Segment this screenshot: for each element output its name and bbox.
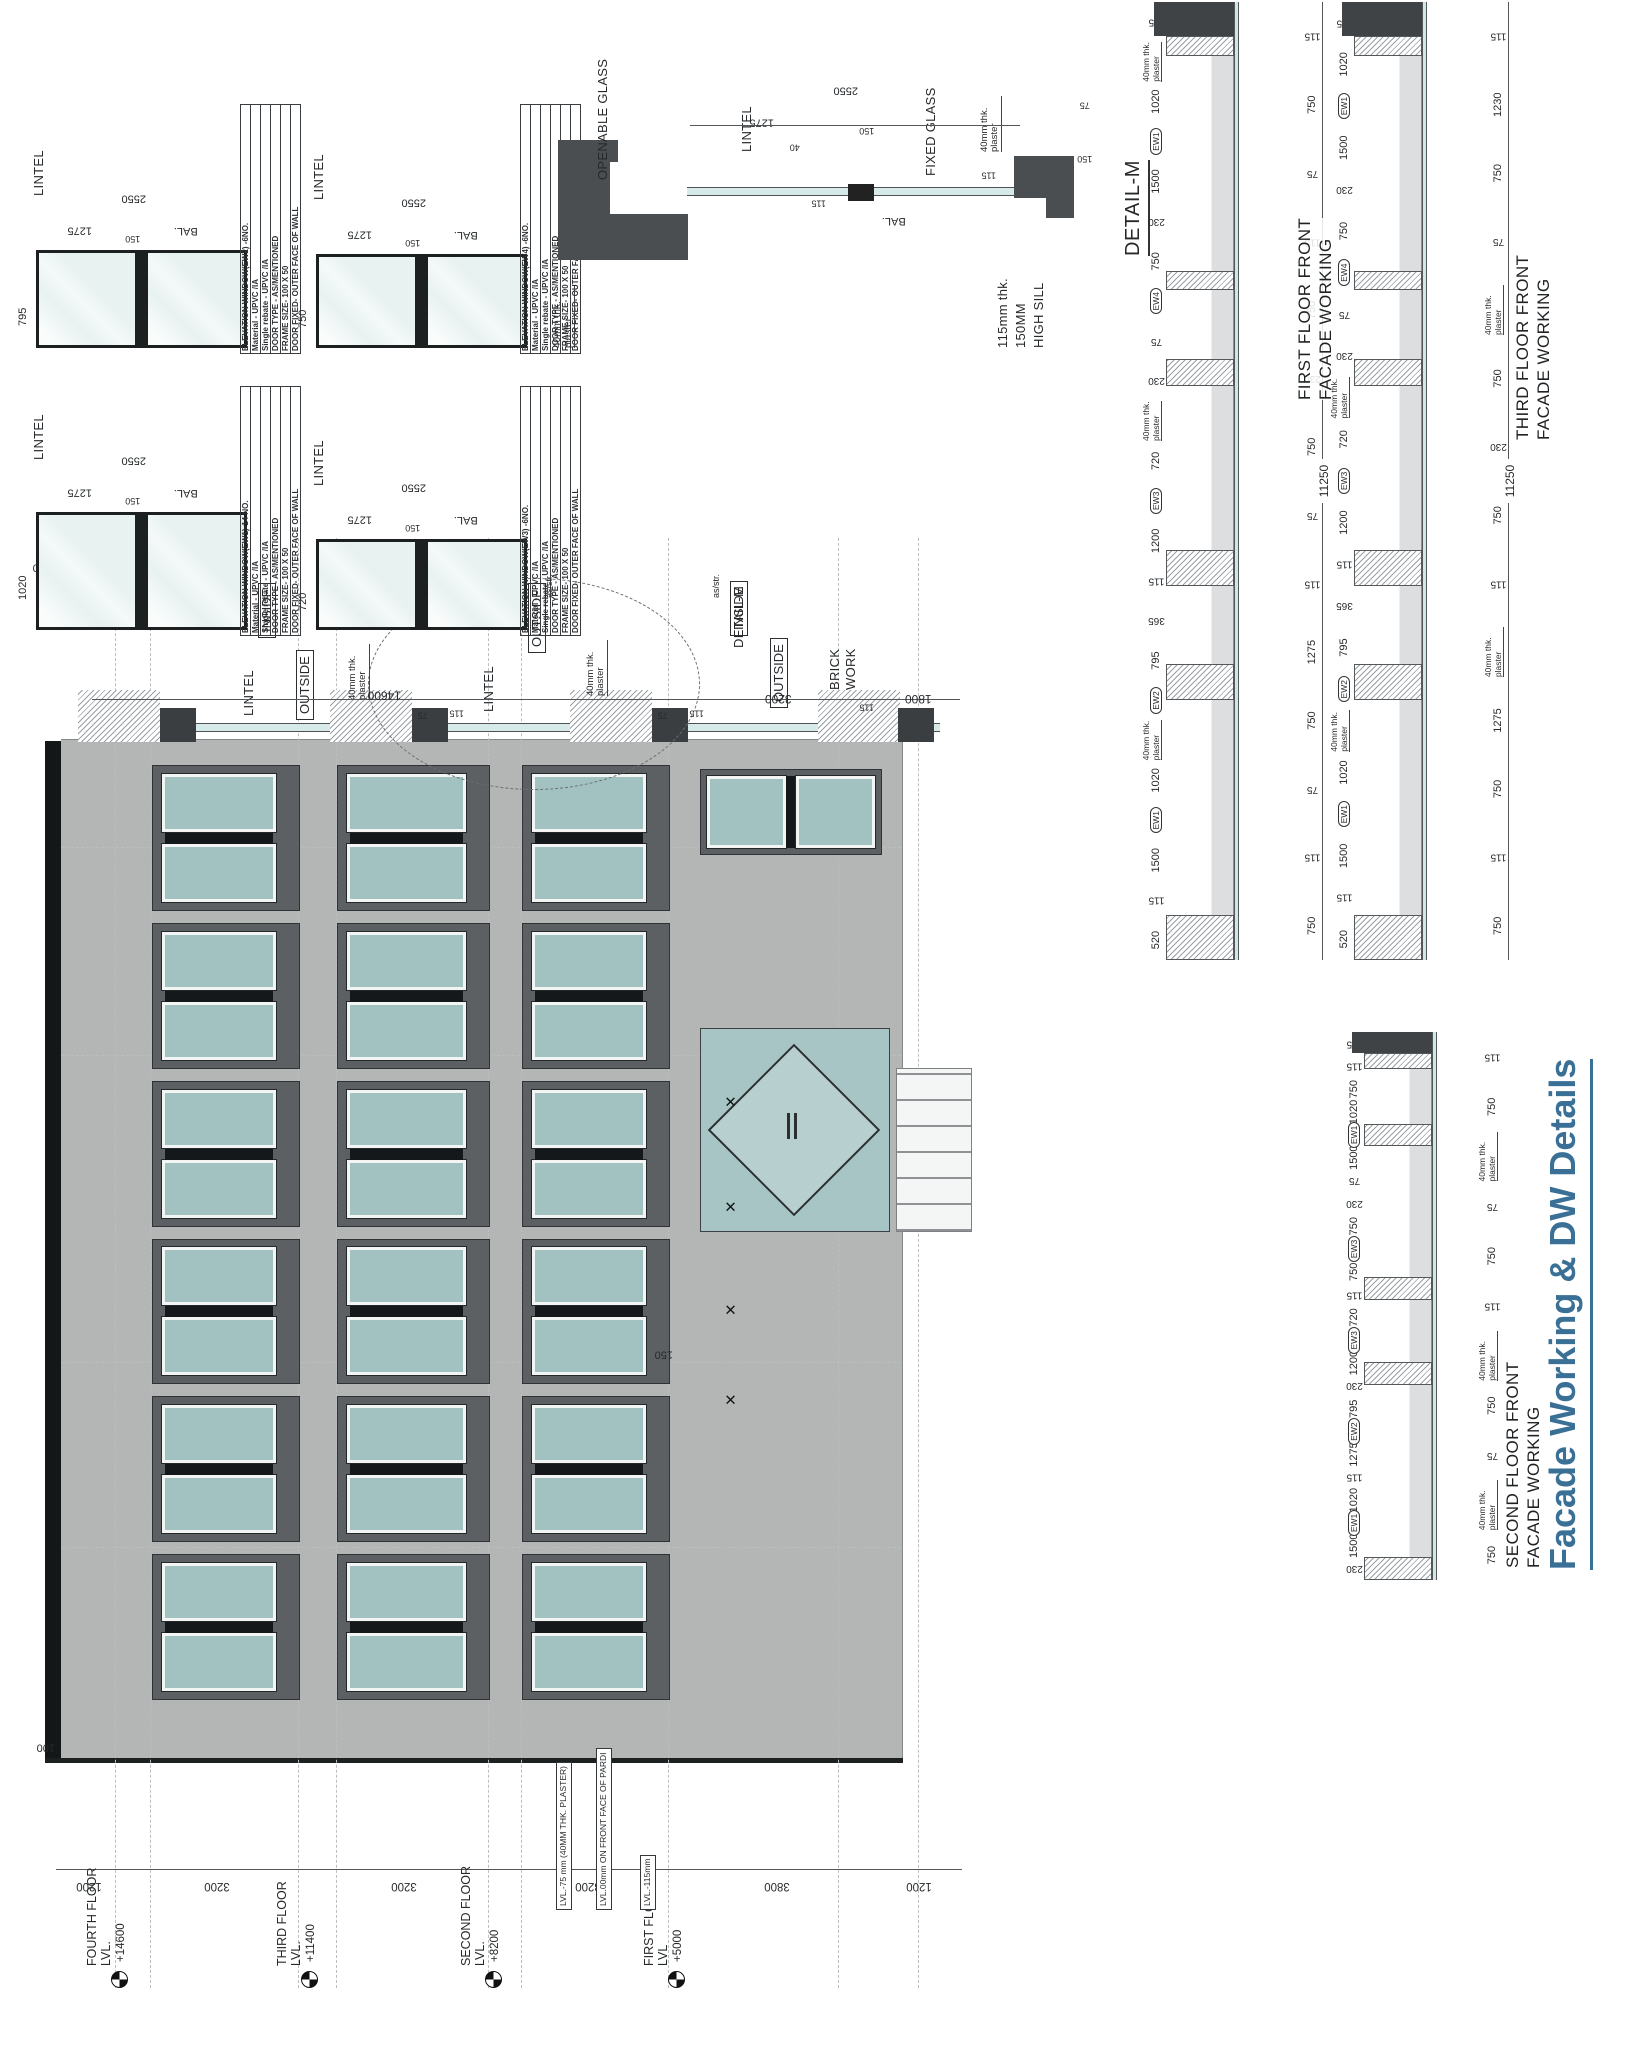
spec-row: Material - UPVC /IA <box>250 105 260 353</box>
wall-segment <box>1364 1053 1432 1069</box>
dim-item: 75 <box>1151 321 1162 361</box>
wall-segment <box>1166 586 1234 663</box>
dim-item: EW1 <box>1150 122 1162 162</box>
window-mullion <box>165 1463 273 1475</box>
wall-segment <box>1364 1362 1432 1385</box>
dim-item: 1020 <box>1150 82 1162 122</box>
inner-dim-row: 2301500EW110201151275EW27952301200EW3720… <box>1290 1032 1360 1580</box>
window-band-middle <box>337 765 490 1700</box>
wall-segment <box>1354 586 1422 663</box>
dim-item: 1275 <box>1492 686 1504 754</box>
outer-dim-row: 750115750127540mm thk. plaster1157502307… <box>1430 2 1504 960</box>
window-glass <box>347 1248 466 1306</box>
spec-header: ELEVATION WINDOW(EW4) -6NO. <box>521 105 530 353</box>
window-panel <box>152 1554 300 1700</box>
dim-item: 115 <box>1487 1281 1498 1331</box>
window-panel <box>522 1554 670 1700</box>
window-panel <box>152 923 300 1069</box>
height-dim: 1020 <box>18 576 30 600</box>
window-glass <box>39 515 135 627</box>
window-glass <box>532 1160 646 1218</box>
window-panel <box>152 1239 300 1385</box>
bal-label: BAL. <box>882 214 906 226</box>
height-dim: 720 <box>298 593 310 611</box>
detail-m-section: 40mm thk. plaster OPENABLE GLASS LINTEL … <box>552 0 1117 348</box>
dim-item: 230 <box>1349 1192 1360 1215</box>
dim-item: 40mm thk. plaster <box>1330 710 1350 752</box>
dim-item: 40mm thk. plaster <box>1484 276 1504 344</box>
window-mullion <box>350 1148 463 1160</box>
floor-level-marker: THIRD FLOOR LVL. +11400 <box>275 1860 317 1990</box>
door-handle <box>787 1113 790 1139</box>
floor-level-value: +11400 <box>305 1860 317 1962</box>
sill-note: 150MM <box>1014 303 1028 348</box>
drawing-sheet-viewport: ✕ ✕ ✕ ✕ 150 100 120032003200320038001200… <box>0 0 1638 2048</box>
lintel-label: LINTEL <box>312 440 326 486</box>
dim-item: 115 <box>1493 2 1504 70</box>
inner-dim-row: 5201151500EW1102040mm thk. plasterEW2795… <box>1082 2 1162 960</box>
dim-115: 115 <box>450 708 464 717</box>
window-band-upper <box>152 765 300 1700</box>
spec-header: ELEVATION WINDOW(EW3) -6NO. <box>521 387 530 635</box>
window-glass <box>347 1405 466 1463</box>
dim-item: 40mm thk. plaster <box>1478 1331 1498 1381</box>
dim-14600: 14600 <box>368 689 401 702</box>
floor-level-name: FOURTH FLOOR LVL. <box>85 1860 113 1966</box>
plan-wall-segment <box>818 690 900 742</box>
window-glass <box>347 1160 466 1218</box>
window-glass <box>319 542 415 627</box>
wall-segment <box>1166 271 1234 290</box>
dim-item: 40mm thk. plaster <box>1142 42 1162 82</box>
parapet-band <box>45 741 61 1763</box>
window-glass <box>162 1160 276 1218</box>
dim-item: 115 <box>1493 823 1504 891</box>
wall-segment <box>1166 36 1234 55</box>
dim-item: 1200 <box>1150 521 1162 561</box>
window-glass <box>532 1405 646 1463</box>
dim-2550: 2550 <box>122 454 146 466</box>
wall-segment <box>1354 664 1422 700</box>
window-elevation-ew2: 795 1275 150 BAL. 2550 LINTEL ELEVATION … <box>12 98 312 356</box>
window-glass <box>162 1317 276 1375</box>
wall-segment <box>1364 1124 1432 1147</box>
level-dim-line <box>56 1869 962 1870</box>
window-panel <box>522 1396 670 1542</box>
dim-115: 115 <box>860 702 874 711</box>
floor-level-marker: SECOND FLOOR LVL. +8200 <box>459 1860 501 1990</box>
dim-1800: 1800 <box>905 692 932 705</box>
window-mullion <box>350 1463 463 1475</box>
outer-dim-row: 75040mm thk. plaster7575040mm thk. plast… <box>1440 1032 1498 1580</box>
dim-100: 100 <box>37 1741 55 1753</box>
dim-item: 115 <box>1339 543 1350 585</box>
dim-item: 40mm thk. plaster <box>1484 618 1504 686</box>
dim-item: 750 <box>1486 1082 1498 1132</box>
wall-segment <box>1166 700 1234 915</box>
dim-115: 115 <box>812 198 826 207</box>
sill-note: HIGH SILL <box>1032 282 1046 348</box>
window-elevation-ew4: 750 1275 150 BAL. 2550 LINTEL ELEVATION … <box>292 98 592 356</box>
window-panel <box>152 765 300 911</box>
glass-line <box>1422 2 1427 960</box>
window-elevation-ew1: 1020 1275 150 BAL. 2550 LINTEL ELEVATION… <box>12 380 312 638</box>
window-panel <box>337 1554 490 1700</box>
dim-item: EW3 <box>1348 1238 1360 1261</box>
dim-item: 40mm thk. plaster <box>1142 720 1162 760</box>
window-mullion <box>165 1305 273 1317</box>
bal-label: BAL. <box>174 224 198 236</box>
sill-note: 115mm thk. <box>996 278 1010 348</box>
window-mullion <box>165 832 273 844</box>
window-mullion <box>786 776 796 848</box>
dim-item: 1500 <box>1348 1534 1360 1557</box>
wall-segment <box>1166 290 1234 359</box>
dim-item: 795 <box>1150 641 1162 681</box>
dim-75: 75 <box>418 710 428 719</box>
floor-height-dims: 120032003200320038001200 <box>56 1872 962 1900</box>
window-graphic <box>316 539 527 630</box>
glass-line <box>1234 2 1239 960</box>
dim-item: 750 <box>1492 139 1504 207</box>
window-glass <box>532 1002 646 1060</box>
lintel-label: LINTEL <box>740 106 754 152</box>
dim-item: 115 <box>1493 549 1504 617</box>
dim-item: EW1 <box>1338 793 1350 835</box>
spec-row: Material - UPVC /IA <box>530 387 540 635</box>
dim-item: 1200 <box>1348 1352 1360 1375</box>
dim-item: 115 <box>1339 877 1350 919</box>
wall-segment <box>1354 386 1422 549</box>
sheet-title: Facade Working & DW Details <box>1542 1059 1593 1570</box>
wall-segment <box>1154 2 1234 36</box>
fixed-glass-label: FIXED GLASS <box>924 87 938 176</box>
plan-column <box>898 708 934 742</box>
floor-level-marker: FOURTH FLOOR LVL. +14600 <box>85 1860 127 1990</box>
dim-item: 230 <box>1339 169 1350 211</box>
window-glass <box>162 1405 276 1463</box>
window-graphic <box>36 250 247 348</box>
level-symbol-icon <box>111 1971 128 1988</box>
spec-row: Material - UPVC /IA <box>250 387 260 635</box>
dim-150: 150 <box>859 126 874 135</box>
window-glass <box>162 1475 276 1533</box>
window-elevation-ew3: 720 1275 150 BAL. 2550 LINTEL ELEVATION … <box>292 380 592 638</box>
dim-item: 115 <box>1349 1055 1360 1078</box>
window-mullion <box>535 832 643 844</box>
wall-segment <box>1354 550 1422 586</box>
wall-segment <box>1354 56 1422 271</box>
dim-item: 750 <box>1486 1231 1498 1281</box>
bal-label: BAL. <box>454 228 478 240</box>
dim-2550: 2550 <box>122 192 146 204</box>
openable-glass-label: OPENABLE GLASS <box>596 59 610 180</box>
window-glass <box>532 1090 646 1148</box>
second-floor-facade-strip: 2301500EW110201151275EW27952301200EW3720… <box>1290 1032 1560 1580</box>
wall-segment <box>1166 915 1234 960</box>
dim-item: 720 <box>1150 441 1162 481</box>
wall-segment <box>1354 915 1422 960</box>
dim-40: 40 <box>790 142 800 151</box>
dim-item: 115 <box>1151 561 1162 601</box>
spec-row: Single rebate - UPVC /IA <box>540 387 550 635</box>
window-mullion <box>350 990 463 1002</box>
spec-header: ELEVATION WINDOW(EW2) -6NO. <box>241 105 250 353</box>
brick-work-label: BRICK <box>828 649 842 690</box>
window-spec-table: ELEVATION WINDOW(EW3) -6NO. Material - U… <box>520 386 581 636</box>
dim-2550: 2550 <box>834 84 858 96</box>
dim-1275: 1275 <box>68 224 92 236</box>
height-dim: 795 <box>18 308 30 326</box>
window-glass <box>707 776 786 848</box>
glazing-x-mark: ✕ <box>722 1095 740 1108</box>
wall-segment <box>1364 1557 1432 1580</box>
window-glass <box>532 1563 646 1621</box>
dim-150: 150 <box>125 234 140 243</box>
lintel-label: LINTEL <box>32 150 46 196</box>
dim-item: EW1 <box>1348 1512 1360 1535</box>
projection-line <box>838 538 839 1988</box>
dim-item: 1500 <box>1338 835 1350 877</box>
bal-label: BAL. <box>174 486 198 498</box>
wall-segment <box>1354 700 1422 915</box>
dim-item: 40mm thk. plaster <box>1142 401 1162 441</box>
window-glass <box>532 932 646 990</box>
plaster-note: 40mm thk. plaster <box>980 96 1002 152</box>
dim-item: 75 <box>1493 207 1504 275</box>
window-glass <box>162 844 276 902</box>
level-symbol-icon <box>301 1971 318 1988</box>
dim-item: 1500 <box>1150 162 1162 202</box>
wall-segment <box>1354 290 1422 359</box>
dim-item: 75 <box>1487 1182 1498 1232</box>
window-glass <box>162 1002 276 1060</box>
overall-dim: 11250 <box>1508 2 1527 960</box>
dim-item: 230 <box>1339 335 1350 377</box>
dim-item: 115 <box>1151 880 1162 920</box>
projection-line <box>918 538 919 1988</box>
height-dim: 750 <box>298 310 310 328</box>
dim-item: 750 <box>1348 1078 1360 1101</box>
entrance-diamond-door <box>708 1044 881 1217</box>
dim-item: 1020 <box>1338 752 1350 794</box>
window-glass <box>428 542 524 627</box>
window-glass <box>347 1475 466 1533</box>
spec-row: Single rebate - UPVC /IA <box>260 105 270 353</box>
spec-row: DOOR TYPE - AS/MENTIONED <box>270 387 280 635</box>
facade-working-sheet: ✕ ✕ ✕ ✕ 150 100 120032003200320038001200… <box>0 0 1638 2048</box>
window-glass <box>347 774 466 832</box>
window-panel <box>337 923 490 1069</box>
window-mullion <box>165 1621 273 1633</box>
window-glass <box>347 844 466 902</box>
dim-item: 750 <box>1348 1215 1360 1238</box>
window-panel <box>522 923 670 1069</box>
dim-150: 150 <box>405 523 420 532</box>
level-symbol-icon <box>485 1971 502 1988</box>
dim-item: 115 <box>1349 1283 1360 1306</box>
spec-row: Single rebate - UPVC /IA <box>540 105 550 353</box>
dim-item: EW1 <box>1150 800 1162 840</box>
dim-item: 1200 <box>1338 502 1350 544</box>
wall-segment <box>1166 359 1234 387</box>
wall-section <box>558 214 688 260</box>
dim-item: 75 <box>1487 1431 1498 1481</box>
dim-115: 115 <box>982 170 996 179</box>
dim-item: 230 <box>1349 1557 1360 1580</box>
dim-150: 150 <box>125 496 140 505</box>
window-glass <box>319 257 415 345</box>
window-glass <box>162 1633 276 1691</box>
window-glass <box>347 1002 466 1060</box>
dim-3200: 3200 <box>765 692 792 705</box>
dim-item: 795 <box>1338 627 1350 669</box>
ground-annex-window <box>700 769 882 855</box>
dim-item: EW2 <box>1348 1420 1360 1443</box>
plaster-note: 40mm thk. plaster <box>586 640 608 696</box>
window-glass <box>532 844 646 902</box>
wall-segment <box>1342 2 1422 36</box>
window-panel <box>337 1239 490 1385</box>
dim-item: EW3 <box>1150 481 1162 521</box>
dim-item: 365 <box>1339 585 1350 627</box>
dim-item: 230 <box>1151 201 1162 241</box>
dim-115: 115 <box>690 708 704 717</box>
as-str-note: as/str. <box>712 574 721 598</box>
dim-item: 115 <box>1487 1032 1498 1082</box>
dim-item: 1275 <box>1348 1443 1360 1466</box>
level-note: LVL.-75 mm (40MM THK. PLASTER) <box>556 1762 572 1910</box>
window-mullion <box>535 990 643 1002</box>
dim-2550: 2550 <box>402 481 426 493</box>
wall-segment <box>1354 271 1422 290</box>
glazing-x-mark: ✕ <box>722 1303 740 1316</box>
window-glass <box>532 1248 646 1306</box>
window-glass <box>39 253 135 345</box>
window-graphic <box>36 512 247 630</box>
dim-1275: 1275 <box>348 513 372 525</box>
dim-item: EW2 <box>1338 668 1350 710</box>
window-panel <box>152 1081 300 1227</box>
plaster-note: 40mm thk. plaster <box>552 286 575 348</box>
window-mullion <box>135 515 148 627</box>
spec-row: DOOR FIXED- OUTER FACE OF WALL <box>570 387 580 635</box>
dim-item: 1500 <box>1150 840 1162 880</box>
glass-line <box>1432 1032 1437 1580</box>
wall-band <box>1364 1032 1432 1580</box>
dim-item: 1500 <box>1348 1146 1360 1169</box>
window-panel <box>337 1081 490 1227</box>
dim-item: 75 <box>1349 1169 1360 1192</box>
dim-150: 150 <box>655 1348 673 1360</box>
window-glass <box>162 774 276 832</box>
glazing-x-mark: ✕ <box>722 1200 740 1213</box>
spec-row: Single rebate - UPVC /IA <box>260 387 270 635</box>
plaster-note: 40mm thk. plaster <box>348 644 370 700</box>
window-panel <box>337 1396 490 1542</box>
dim-line <box>690 125 1020 126</box>
dim-item: 115 <box>1349 1466 1360 1489</box>
dim-item: 520 <box>1150 920 1162 960</box>
dim-2550: 2550 <box>402 196 426 208</box>
dim-item: 40mm thk. plaster <box>1478 1480 1498 1530</box>
dim-item: 750 <box>1492 755 1504 823</box>
level-note: LVL.00mm ON FRONT FACE OF PARDI <box>596 1749 612 1911</box>
dim-item: 230 <box>1151 361 1162 401</box>
wall-segment <box>1364 1385 1432 1557</box>
dim-item: EW3 <box>1348 1329 1360 1352</box>
window-glass <box>347 932 466 990</box>
dim-item: 750 <box>1486 1530 1498 1580</box>
outside-label: OUTSIDE <box>296 650 314 720</box>
window-panel <box>522 1081 670 1227</box>
dim-item: 1500 <box>1338 127 1350 169</box>
wall-segment <box>1166 550 1234 586</box>
floor-level-name: THIRD FLOOR LVL. <box>275 1860 303 1966</box>
brick-work-label: WORK <box>844 648 858 690</box>
lintel-label: LINTEL <box>312 154 326 200</box>
dim-item: 520 <box>1338 918 1350 960</box>
projection-line <box>150 538 151 1988</box>
dim-item: 1020 <box>1150 760 1162 800</box>
dim-item: EW4 <box>1338 252 1350 294</box>
dim-item: 720 <box>1338 418 1350 460</box>
window-glass <box>532 1633 646 1691</box>
facade-left-edge <box>45 1758 903 1763</box>
plan-column <box>160 708 196 742</box>
dim-item: 750 <box>1338 210 1350 252</box>
window-mullion <box>535 1148 643 1160</box>
window-panel <box>522 1239 670 1385</box>
entrance-steps <box>896 1068 972 1232</box>
spec-row: FRAME SIZE- 100 X 50 <box>280 387 290 635</box>
dim-item: 1020 <box>1348 1489 1360 1512</box>
plan-wall-segment <box>78 690 160 742</box>
strip-title: SECOND FLOOR FRONTFACADE WORKING <box>1502 1362 1545 1569</box>
window-glass <box>162 1248 276 1306</box>
window-panel <box>337 765 490 911</box>
spec-row: FRAME SIZE- 100 X 50 <box>560 387 570 635</box>
dim-item: 1230 <box>1492 71 1504 139</box>
wall-segment <box>1166 664 1234 700</box>
facade-elevation: ✕ ✕ ✕ ✕ 150 100 <box>40 733 975 1868</box>
wall-segment <box>1166 56 1234 271</box>
window-mullion <box>165 1148 273 1160</box>
dim-item: 40mm thk. plaster <box>1478 1132 1498 1182</box>
window-glass <box>162 1090 276 1148</box>
window-mullion <box>350 832 463 844</box>
dim-1275: 1275 <box>68 486 92 498</box>
detail-m-callout: DETAIL-M <box>732 586 746 648</box>
wall-segment <box>1354 359 1422 387</box>
lintel-label: LINTEL <box>242 670 256 716</box>
window-mullion <box>415 257 428 345</box>
wall-segment <box>1364 1146 1432 1277</box>
spec-row: FRAME SIZE- 100 X 50 <box>280 105 290 353</box>
glazing-x-mark: ✕ <box>722 1393 740 1406</box>
sill-base <box>1046 156 1074 218</box>
projection-line <box>115 538 116 1988</box>
floor-level-value: +8200 <box>489 1860 501 1962</box>
window-glass <box>347 1090 466 1148</box>
level-note: LVL.-115mm <box>640 1855 656 1910</box>
dim-item: 1020 <box>1338 44 1350 86</box>
window-glass <box>347 1563 466 1621</box>
dim-item: 365 <box>1151 601 1162 641</box>
window-glass <box>148 253 244 345</box>
window-mullion <box>535 1305 643 1317</box>
wall-segment <box>1364 1300 1432 1362</box>
